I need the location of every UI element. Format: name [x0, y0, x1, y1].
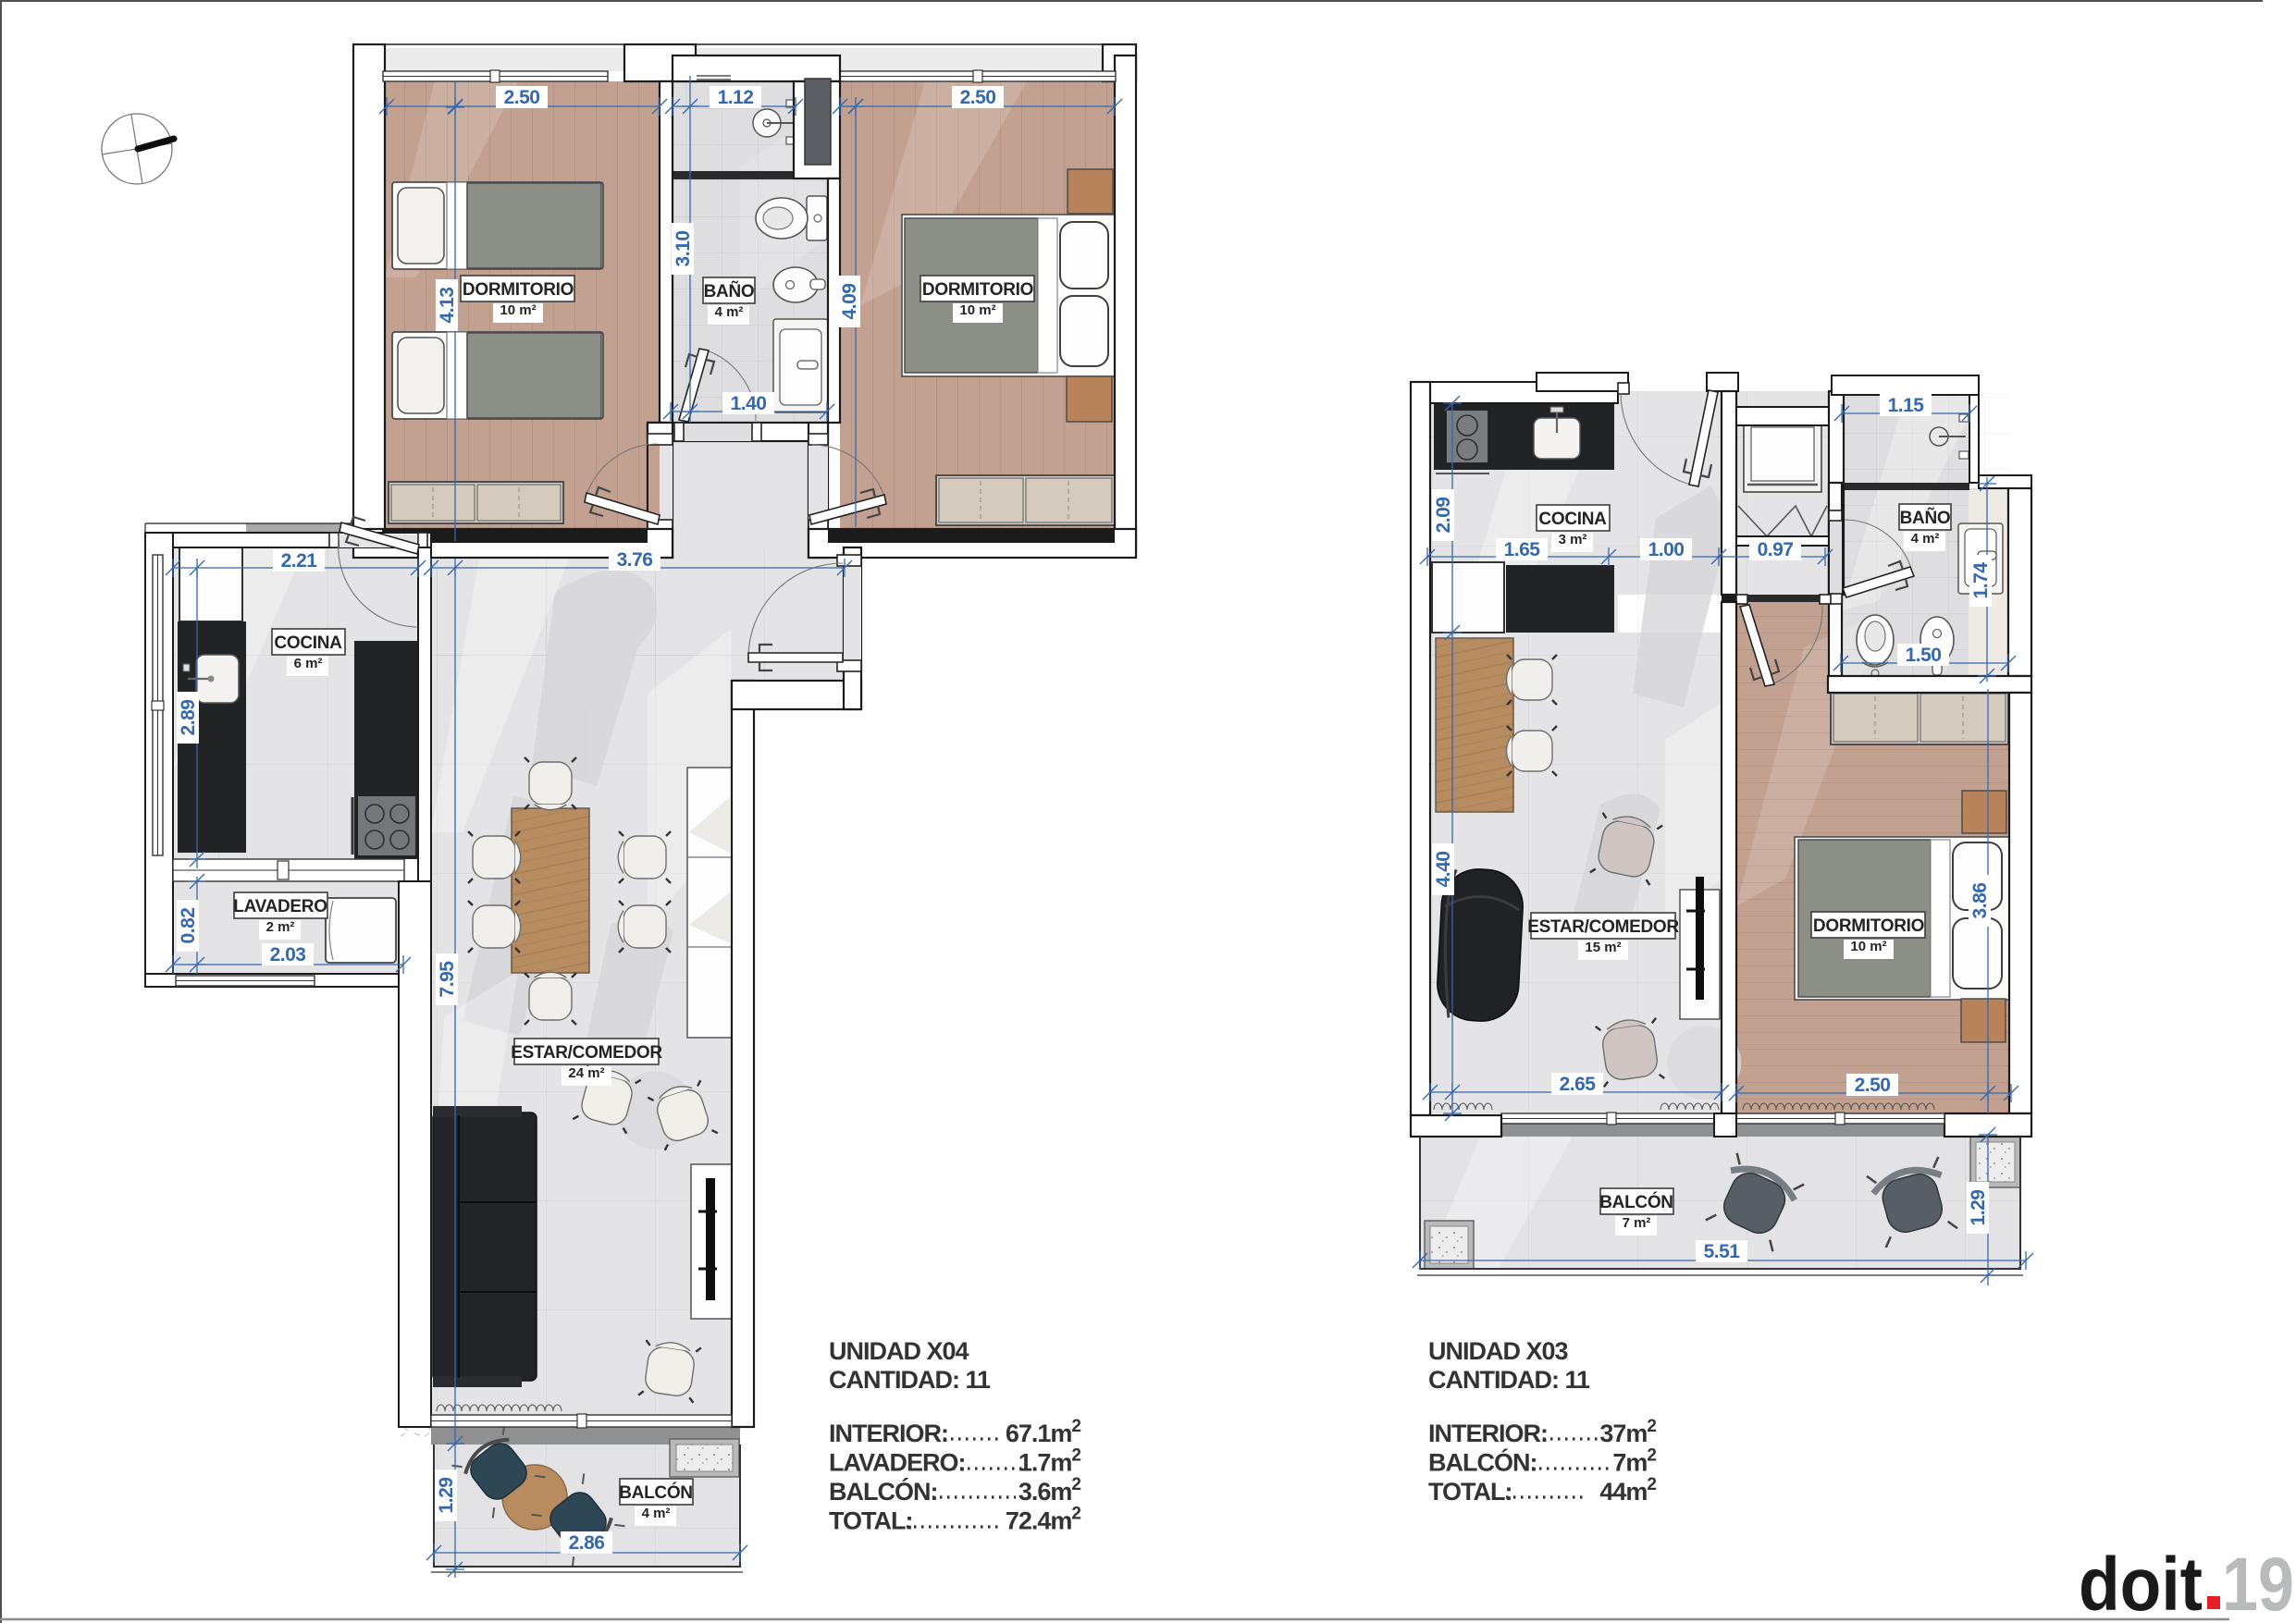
- svg-text:1.12: 1.12: [718, 87, 754, 108]
- svg-text:4.40: 4.40: [1433, 852, 1454, 888]
- svg-text:TOTAL:: TOTAL:: [1428, 1478, 1512, 1506]
- svg-text:4 m²: 4 m²: [1911, 531, 1940, 547]
- svg-text:1.50: 1.50: [1906, 645, 1942, 666]
- svg-text:CANTIDAD: 11: CANTIDAD: 11: [829, 1366, 991, 1394]
- svg-text:BAÑO: BAÑO: [704, 281, 755, 301]
- svg-text:1.74: 1.74: [1970, 562, 1992, 599]
- svg-text:72.4m2: 72.4m2: [1006, 1505, 1081, 1535]
- svg-text:2.65: 2.65: [1560, 1074, 1597, 1095]
- svg-text:7.95: 7.95: [437, 961, 458, 998]
- svg-text:LAVADERO:: LAVADERO:: [829, 1449, 966, 1477]
- svg-text:4 m²: 4 m²: [642, 1506, 671, 1521]
- svg-text:4 m²: 4 m²: [715, 304, 744, 320]
- svg-text:4.09: 4.09: [839, 284, 860, 320]
- svg-text:BALCÓN:: BALCÓN:: [1428, 1448, 1537, 1477]
- svg-text:UNIDAD X04: UNIDAD X04: [829, 1337, 969, 1365]
- svg-text:10 m²: 10 m²: [500, 302, 536, 318]
- svg-text:COCINA: COCINA: [274, 633, 342, 653]
- svg-text:UNIDAD X03: UNIDAD X03: [1428, 1337, 1569, 1365]
- svg-text:3 m²: 3 m²: [1559, 532, 1587, 547]
- svg-text:INTERIOR:: INTERIOR:: [1428, 1420, 1548, 1447]
- svg-text:2.50: 2.50: [504, 87, 540, 108]
- svg-text:2 m²: 2 m²: [266, 919, 295, 935]
- svg-text:10 m²: 10 m²: [1850, 939, 1886, 954]
- svg-text:2.03: 2.03: [270, 944, 306, 965]
- svg-text:7 m²: 7 m²: [1623, 1215, 1651, 1231]
- svg-text:2.21: 2.21: [281, 550, 318, 572]
- svg-text:3.86: 3.86: [1969, 883, 1991, 919]
- svg-text:6 m²: 6 m²: [294, 656, 323, 671]
- svg-text:COCINA: COCINA: [1538, 510, 1607, 529]
- svg-text:DORMITORIO: DORMITORIO: [463, 280, 574, 300]
- svg-text:3.6m2: 3.6m2: [1018, 1475, 1081, 1506]
- svg-text:1.15: 1.15: [1888, 395, 1925, 416]
- svg-text:2.09: 2.09: [1433, 498, 1454, 534]
- svg-text:BALCÓN: BALCÓN: [619, 1482, 692, 1503]
- svg-text:3.76: 3.76: [617, 549, 653, 571]
- svg-text:1.7m2: 1.7m2: [1018, 1446, 1081, 1477]
- svg-text:BAÑO: BAÑO: [1900, 508, 1951, 528]
- svg-text:10 m²: 10 m²: [959, 302, 995, 318]
- svg-text:ESTAR/COMEDOR: ESTAR/COMEDOR: [511, 1043, 662, 1063]
- svg-text:15 m²: 15 m²: [1585, 940, 1621, 955]
- svg-text:DORMITORIO: DORMITORIO: [1813, 916, 1924, 936]
- svg-text:2.50: 2.50: [960, 87, 996, 108]
- svg-text:BALCÓN: BALCÓN: [1599, 1192, 1673, 1212]
- svg-text:1.29: 1.29: [436, 1478, 457, 1514]
- svg-text:1.29: 1.29: [1968, 1190, 1989, 1226]
- svg-text:1.65: 1.65: [1504, 539, 1541, 560]
- svg-text:2.89: 2.89: [178, 700, 199, 736]
- svg-text:0.97: 0.97: [1758, 539, 1794, 560]
- svg-text:0.82: 0.82: [178, 908, 199, 944]
- svg-text:5.51: 5.51: [1704, 1241, 1741, 1262]
- svg-text:doit: doit: [2079, 1543, 2203, 1623]
- svg-text:TOTAL:: TOTAL:: [829, 1507, 912, 1535]
- svg-text:LAVADERO: LAVADERO: [233, 897, 327, 916]
- svg-text:24 m²: 24 m²: [568, 1065, 604, 1081]
- svg-text:INTERIOR:: INTERIOR:: [829, 1420, 948, 1447]
- svg-text:19: 19: [2222, 1543, 2294, 1623]
- svg-text:CANTIDAD: 11: CANTIDAD: 11: [1428, 1366, 1590, 1394]
- svg-text:3.10: 3.10: [673, 231, 694, 267]
- svg-text:1.00: 1.00: [1648, 539, 1685, 560]
- svg-text:BALCÓN:: BALCÓN:: [829, 1477, 937, 1506]
- svg-text:DORMITORIO: DORMITORIO: [922, 280, 1033, 300]
- svg-text:4.13: 4.13: [437, 288, 458, 324]
- svg-text:2.86: 2.86: [569, 1532, 605, 1554]
- svg-text:2.50: 2.50: [1855, 1075, 1891, 1096]
- svg-text:ESTAR/COMEDOR: ESTAR/COMEDOR: [1527, 917, 1679, 937]
- svg-text:1.40: 1.40: [731, 393, 767, 414]
- svg-text:67.1m2: 67.1m2: [1006, 1417, 1081, 1447]
